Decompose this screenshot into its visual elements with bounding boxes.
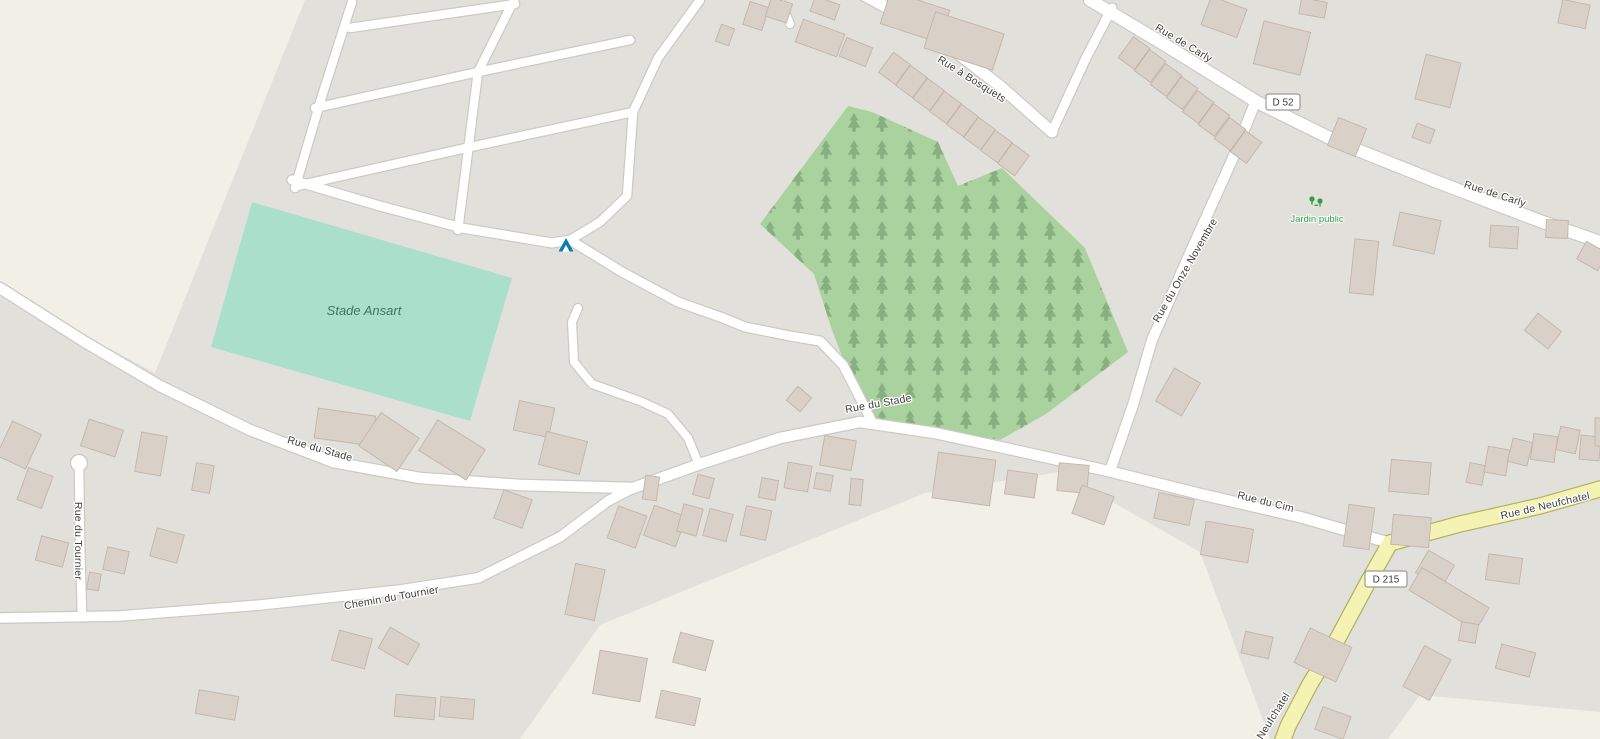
building — [1485, 554, 1522, 584]
building — [849, 479, 863, 506]
route-shield-label: D 52 — [1272, 98, 1294, 109]
building — [814, 473, 834, 492]
building — [932, 452, 996, 506]
map-canvas[interactable]: Rue de CarlyRue de CarlyRue à BosquetsRu… — [0, 0, 1600, 739]
building — [1458, 622, 1478, 644]
building — [1556, 426, 1581, 454]
building — [784, 462, 812, 492]
building — [593, 650, 648, 702]
landuse-layer — [0, 0, 1600, 739]
building — [1484, 446, 1510, 475]
building — [439, 697, 475, 720]
building — [1004, 470, 1037, 498]
pitch-label: Stade Ansart — [327, 303, 403, 318]
park-label: Jardin public — [1290, 214, 1344, 225]
building — [642, 475, 659, 501]
building — [1466, 463, 1486, 486]
building — [1343, 504, 1375, 549]
building — [1489, 225, 1518, 249]
building — [1391, 514, 1431, 547]
road-label: Rue du Tournier — [72, 502, 84, 581]
route-shield-d-215: D 215 — [1365, 571, 1407, 587]
building — [87, 572, 102, 591]
building — [758, 478, 778, 501]
route-shield-d-52: D 52 — [1266, 94, 1300, 110]
building — [740, 506, 772, 541]
building — [103, 547, 129, 574]
building — [1389, 459, 1432, 494]
building — [1595, 418, 1600, 446]
route-shield-label: D 215 — [1373, 575, 1400, 586]
building — [1349, 239, 1379, 295]
map-viewport[interactable]: Rue de CarlyRue de CarlyRue à BosquetsRu… — [0, 0, 1600, 739]
building — [1546, 220, 1569, 239]
building — [1530, 433, 1557, 462]
building — [820, 435, 857, 470]
building — [394, 694, 436, 719]
